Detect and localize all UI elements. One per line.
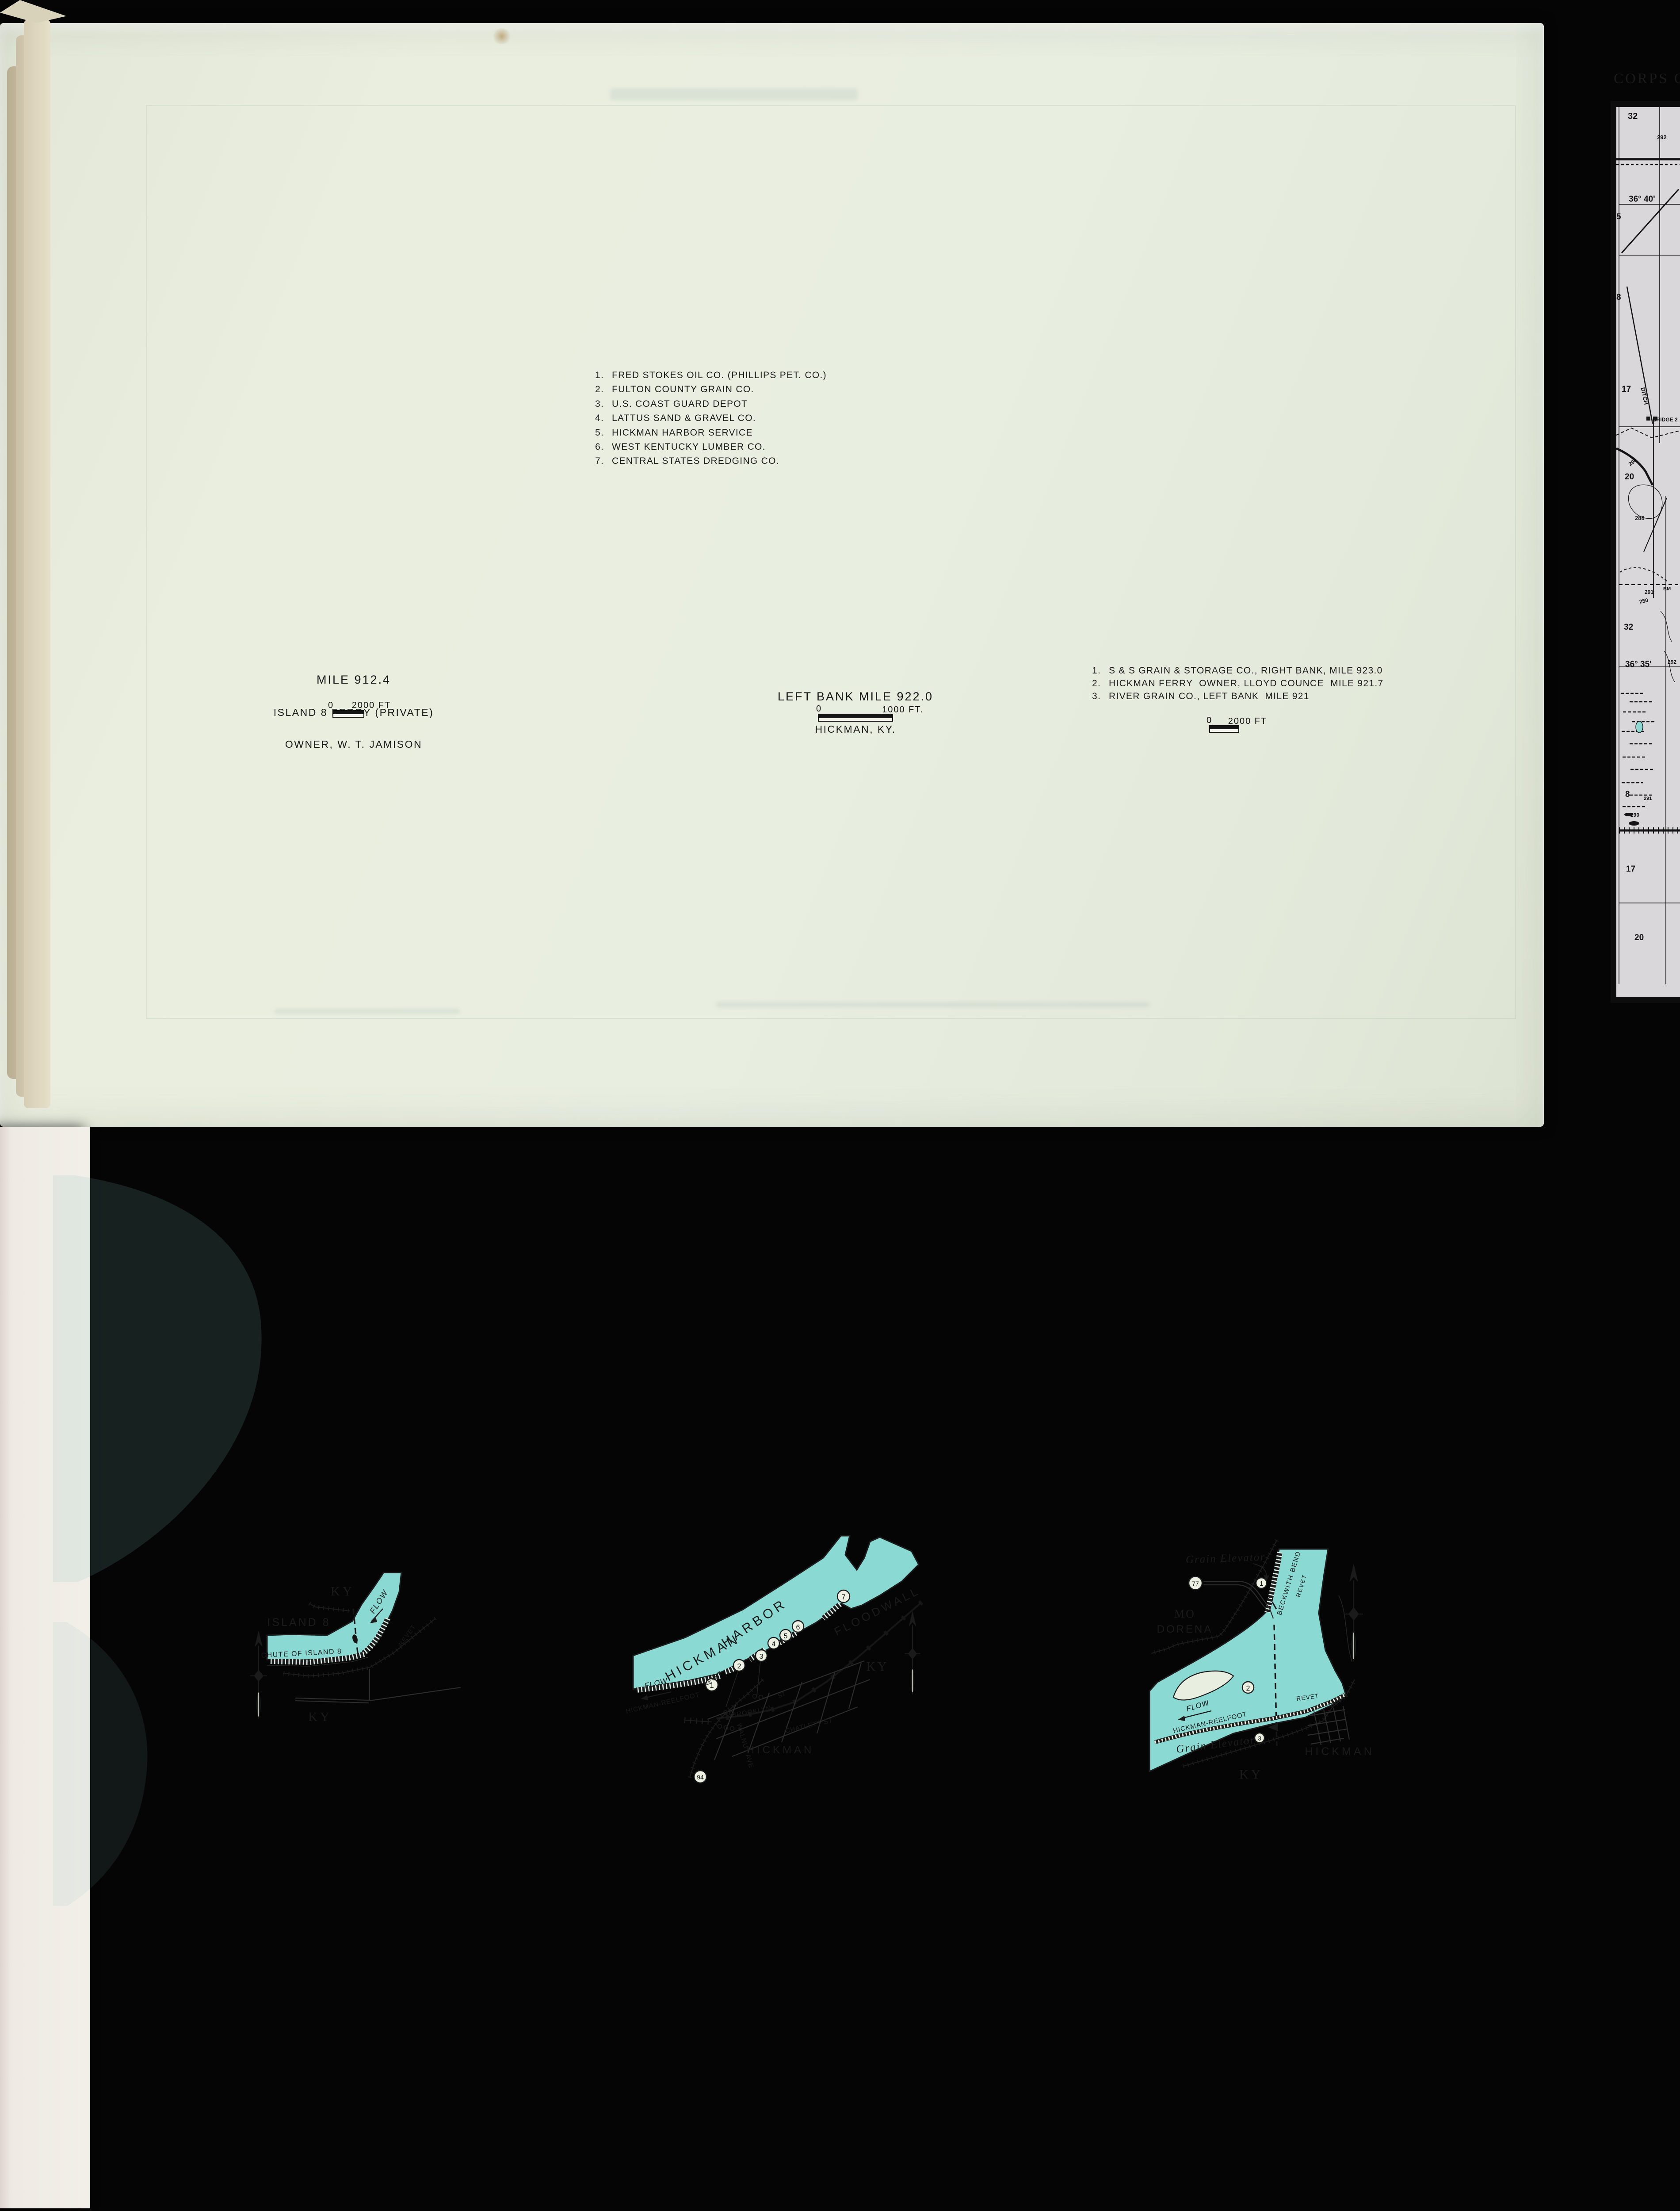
town-label: DORENA — [1157, 1623, 1213, 1635]
list-item-number: 1. — [1092, 664, 1109, 677]
list-item-text: LATTUS SAND & GRAVEL CO. — [612, 413, 756, 423]
list-item: 7.CENTRAL STATES DREDGING CO. — [595, 454, 827, 468]
bleedthrough-text-smear — [716, 1002, 1149, 1007]
list-item-number: 2. — [1092, 677, 1109, 690]
topo-strip-number: 291 — [1645, 589, 1653, 595]
bleedthrough-frame — [146, 105, 1516, 1019]
topo-strip-number: 8 — [1625, 790, 1630, 799]
caption-title: MILE 912.4 — [274, 673, 434, 687]
list-item: 3.RIVER GRAIN CO., LEFT BANK MILE 921 — [1092, 690, 1384, 703]
list-item: 5.HICKMAN HARBOR SERVICE — [595, 426, 827, 440]
street-grid — [1308, 1706, 1349, 1745]
state-label: KY — [308, 1710, 332, 1724]
maps-linework: KY ISLAND 8 FLOW REVET CHUTE OF ISLAND 8… — [0, 1127, 1680, 2211]
north-arrow-compass — [905, 1611, 920, 1695]
state-label: KY — [1239, 1767, 1263, 1782]
list-item: 1.FRED STOKES OIL CO. (PHILLIPS PET. CO.… — [595, 368, 827, 383]
topo-strip-number: 290 — [1630, 812, 1639, 818]
svg-text:94: 94 — [697, 1774, 704, 1781]
list-item-number: 6. — [595, 440, 612, 454]
scale-zero: 0 — [1207, 715, 1212, 726]
topo-strip-number: 288 — [1635, 515, 1645, 521]
topo-strip-number: 291 — [1644, 796, 1652, 801]
list-item-text: HICKMAN HARBOR SERVICE — [612, 428, 753, 438]
contour-line — [1339, 1595, 1352, 1662]
scale-bar — [1209, 725, 1239, 733]
topo-map-strip: 3229236° 40'5817DITCHBRIDGE 229020288BM2… — [1611, 101, 1680, 1003]
list-item-text: FULTON COUNTY GRAIN CO. — [612, 384, 754, 394]
list-item: 2.FULTON COUNTY GRAIN CO. — [595, 383, 827, 397]
topo-strip-number: 32 — [1628, 111, 1638, 122]
svg-text:4: 4 — [772, 1641, 776, 1648]
harbor-legend-list: 1.FRED STOKES OIL CO. (PHILLIPS PET. CO.… — [595, 368, 827, 469]
bleedthrough-text-smear — [274, 1009, 460, 1014]
list-item: 3.U.S. COAST GUARD DEPOT — [595, 397, 827, 411]
svg-text:1: 1 — [1260, 1580, 1263, 1587]
topo-strip-number: 8 — [1616, 293, 1621, 302]
list-item: 6.WEST KENTUCKY LUMBER CO. — [595, 440, 827, 454]
list-item: 4.LATTUS SAND & GRAVEL CO. — [595, 411, 827, 425]
list-item-number: 4. — [595, 411, 612, 425]
street-label: CHATLETT ST — [784, 1717, 833, 1735]
levee-label: HICKMAN-REELFOOT — [625, 1691, 700, 1715]
harbor-marker-3: 3 — [756, 1650, 767, 1661]
map-island8: KY ISLAND 8 FLOW REVET CHUTE OF ISLAND 8… — [250, 1572, 461, 1724]
pond — [1636, 721, 1643, 733]
topo-strip-number: 20 — [1625, 472, 1634, 482]
harbor-marker-5: 5 — [780, 1630, 791, 1641]
beckwith-marker-3: 3 — [1255, 1733, 1264, 1743]
topo-strip-number: 17 — [1622, 385, 1631, 394]
beckwith-notes-list: 1.S & S GRAIN & STORAGE CO., RIGHT BANK,… — [1092, 664, 1384, 703]
scale-bar — [332, 710, 364, 718]
topo-strip-number: 292 — [1657, 134, 1667, 141]
harbor-marker-7: 7 — [837, 1590, 850, 1603]
list-item-text: S & S GRAIN & STORAGE CO., RIGHT BANK, M… — [1109, 666, 1383, 676]
town-label: HICKMAN — [747, 1744, 814, 1756]
list-item-number: 7. — [595, 454, 612, 468]
topo-strip-number: 32 — [1624, 623, 1633, 632]
harbor-marker-2: 2 — [733, 1660, 745, 1671]
book-photo: KY ISLAND 8 FLOW REVET CHUTE OF ISLAND 8… — [0, 0, 1680, 1128]
flow-arrow — [641, 1695, 648, 1700]
list-item-number: 5. — [595, 426, 612, 440]
list-item-number: 3. — [595, 397, 612, 411]
topo-strip-number: 17 — [1626, 865, 1635, 874]
page-stack-edge — [24, 19, 50, 1108]
map-beckwith-bend: 1 2 3 77 Grain Elevator MO DORENA BECKWI… — [1149, 1540, 1375, 1782]
topo-strip-linework — [1616, 107, 1680, 984]
svg-text:5: 5 — [784, 1633, 788, 1640]
street-label: ST — [777, 1690, 786, 1699]
harbor-marker-6: 6 — [792, 1621, 804, 1632]
page-corner-curl — [0, 0, 66, 23]
list-item-text: CENTRAL STATES DREDGING CO. — [612, 456, 779, 466]
list-item-number: 2. — [595, 383, 612, 397]
list-item: 1.S & S GRAIN & STORAGE CO., RIGHT BANK,… — [1092, 664, 1384, 677]
topo-strip-number: 292 — [1668, 659, 1676, 665]
scale-bar — [818, 714, 893, 722]
list-item-text: WEST KENTUCKY LUMBER CO. — [612, 442, 766, 452]
caption-line: HICKMAN, KY. — [778, 723, 933, 735]
island8-label: ISLAND 8 — [267, 1616, 330, 1629]
scale-zero: 0 — [328, 700, 334, 711]
list-item: 2.HICKMAN FERRY OWNER, LLOYD COUNCE MILE… — [1092, 677, 1384, 690]
topo-strip-number: BRIDGE 2 — [1653, 417, 1678, 423]
route-94-marker: 94 — [694, 1771, 706, 1783]
list-item-text: RIVER GRAIN CO., LEFT BANK MILE 921 — [1109, 691, 1310, 701]
list-item-text: U.S. COAST GUARD DEPOT — [612, 399, 748, 409]
beckwith-marker-1: 1 — [1256, 1578, 1267, 1588]
svg-text:6: 6 — [796, 1624, 800, 1631]
list-item-text: HICKMAN FERRY OWNER, LLOYD COUNCE MILE 9… — [1109, 678, 1384, 689]
svg-text:7: 7 — [841, 1593, 845, 1601]
north-arrow-compass — [250, 1630, 267, 1720]
state-label: MO — [1174, 1607, 1195, 1620]
scale-zero: 0 — [816, 704, 822, 714]
state-label: KY — [867, 1660, 889, 1674]
list-item-text: FRED STOKES OIL CO. (PHILLIPS PET. CO.) — [612, 370, 827, 380]
caption-title: LEFT BANK MILE 922.0 — [778, 690, 933, 704]
svg-text:3: 3 — [1258, 1735, 1261, 1742]
corps-of-engineers-header: CORPS OF — [1614, 71, 1680, 87]
street-label: BROOKLYN — [731, 1705, 772, 1719]
svg-text:77: 77 — [1192, 1580, 1199, 1587]
town-label: HICKMAN — [1305, 1745, 1374, 1758]
beckwith-marker-2: 2 — [1242, 1682, 1254, 1693]
route-77-marker: 77 — [1189, 1576, 1202, 1590]
topo-strip-number: 36° 40' — [1629, 195, 1655, 204]
bleedthrough-river — [53, 1175, 262, 1906]
list-item-number: 1. — [595, 368, 612, 383]
caption-line: OWNER, W. T. JAMISON — [274, 738, 434, 750]
harbor-marker-4: 4 — [768, 1637, 779, 1649]
svg-text:2: 2 — [1246, 1685, 1250, 1692]
topo-strip-number: BM — [1663, 586, 1671, 592]
topo-strip-number: 36° 35' — [1625, 660, 1652, 669]
page-stain — [492, 28, 512, 44]
topo-strip-number: 20 — [1634, 933, 1644, 943]
bleedthrough-text-smear — [610, 88, 858, 100]
north-arrow-compass — [1344, 1564, 1363, 1663]
scale-distance: 2000 FT — [352, 700, 391, 711]
list-item-number: 3. — [1092, 690, 1109, 703]
map-hickman-harbor: 1 2 3 4 5 6 7 94 HICKMAN HARBOR FLOODWAL… — [625, 1536, 922, 1783]
topo-strip-number: 5 — [1616, 212, 1621, 222]
svg-text:2: 2 — [737, 1663, 741, 1670]
revet-label: REVET — [397, 1623, 417, 1648]
state-label: KY — [331, 1584, 355, 1599]
svg-text:3: 3 — [760, 1653, 764, 1660]
